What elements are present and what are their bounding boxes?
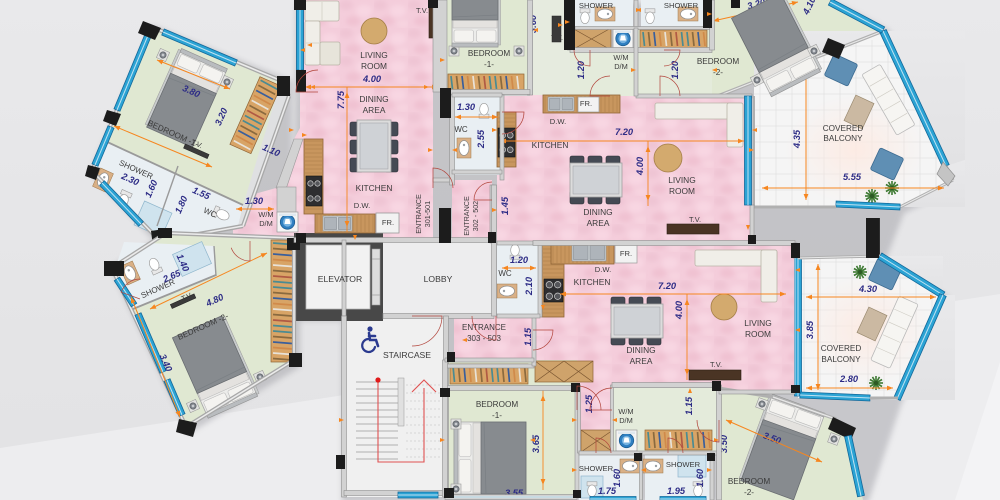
- svg-text:T.V.: T.V.: [416, 6, 428, 15]
- svg-text:1.95: 1.95: [667, 486, 686, 496]
- svg-text:FR.: FR.: [580, 99, 592, 108]
- svg-text:W/M: W/M: [258, 210, 273, 219]
- svg-text:4.30: 4.30: [858, 284, 878, 294]
- svg-text:-2-: -2-: [744, 488, 754, 497]
- svg-text:ENTRANCE: ENTRANCE: [462, 196, 471, 236]
- svg-text:D/M: D/M: [614, 62, 628, 71]
- svg-text:LIVING: LIVING: [744, 318, 771, 328]
- svg-text:4.00: 4.00: [362, 74, 382, 84]
- svg-text:4.00: 4.00: [674, 300, 684, 320]
- svg-text:COVERED: COVERED: [823, 124, 864, 133]
- svg-text:-1-: -1-: [492, 411, 502, 420]
- svg-text:BALCONY: BALCONY: [823, 134, 863, 143]
- svg-text:3.85: 3.85: [805, 320, 815, 339]
- svg-text:7.20: 7.20: [615, 127, 634, 137]
- svg-text:DINING: DINING: [626, 345, 655, 355]
- svg-text:SHOWER: SHOWER: [579, 1, 614, 10]
- svg-text:WC: WC: [498, 269, 512, 278]
- svg-text:KITCHEN: KITCHEN: [574, 277, 611, 287]
- svg-text:7.75: 7.75: [336, 90, 346, 109]
- svg-text:4.35: 4.35: [792, 129, 802, 149]
- svg-text:DINING: DINING: [359, 94, 388, 104]
- svg-text:SHOWER: SHOWER: [579, 464, 614, 473]
- svg-text:D.W.: D.W.: [550, 117, 566, 126]
- svg-text:1.60: 1.60: [695, 468, 705, 487]
- svg-text:BEDROOM: BEDROOM: [476, 400, 518, 409]
- svg-text:DINING: DINING: [583, 207, 612, 217]
- svg-text:4.00: 4.00: [635, 156, 645, 176]
- svg-text:2.80: 2.80: [839, 374, 859, 384]
- svg-text:ROOM: ROOM: [745, 329, 771, 339]
- svg-text:W/M: W/M: [613, 53, 628, 62]
- svg-text:301-501: 301-501: [423, 201, 432, 227]
- svg-text:2.10: 2.10: [524, 276, 534, 296]
- svg-text:3.65: 3.65: [531, 434, 541, 453]
- svg-text:W/M: W/M: [618, 407, 633, 416]
- svg-text:LIVING: LIVING: [668, 175, 695, 185]
- svg-text:AREA: AREA: [587, 218, 610, 228]
- svg-text:1.15: 1.15: [684, 396, 694, 415]
- svg-text:T.V.: T.V.: [710, 360, 722, 369]
- svg-text:ELEVATOR: ELEVATOR: [318, 274, 362, 284]
- svg-text:STAIRCASE: STAIRCASE: [383, 350, 431, 360]
- svg-text:1.60: 1.60: [612, 468, 622, 487]
- svg-text:FR.: FR.: [620, 249, 632, 258]
- svg-text:SHOWER: SHOWER: [664, 1, 699, 10]
- svg-text:1.20: 1.20: [510, 255, 529, 265]
- svg-text:2.55: 2.55: [476, 129, 486, 149]
- svg-text:FR.: FR.: [382, 218, 394, 227]
- svg-text:BEDROOM: BEDROOM: [468, 49, 510, 58]
- svg-text:LIVING: LIVING: [360, 50, 387, 60]
- svg-text:LOBBY: LOBBY: [424, 274, 453, 284]
- svg-text:D/M: D/M: [619, 416, 633, 425]
- svg-text:BEDROOM: BEDROOM: [728, 477, 770, 486]
- svg-text:BALCONY: BALCONY: [821, 355, 861, 364]
- svg-text:ROOM: ROOM: [361, 61, 387, 71]
- svg-text:1.15: 1.15: [523, 327, 533, 346]
- svg-text:ENTRANCE: ENTRANCE: [414, 194, 423, 234]
- svg-text:D.W.: D.W.: [595, 265, 611, 274]
- svg-text:1.20: 1.20: [670, 60, 680, 79]
- svg-text:D.W.: D.W.: [354, 201, 370, 210]
- svg-text:COVERED: COVERED: [821, 344, 862, 353]
- svg-text:AREA: AREA: [363, 105, 386, 115]
- svg-text:ROOM: ROOM: [669, 186, 695, 196]
- svg-text:ENTRANCE: ENTRANCE: [462, 323, 506, 332]
- svg-text:T.V.: T.V.: [689, 215, 701, 224]
- svg-text:7.20: 7.20: [658, 281, 677, 291]
- svg-text:1.45: 1.45: [500, 196, 510, 215]
- svg-text:1.30: 1.30: [245, 196, 264, 206]
- svg-text:1.30: 1.30: [457, 102, 476, 112]
- svg-text:KITCHEN: KITCHEN: [356, 183, 393, 193]
- svg-text:SHOWER: SHOWER: [666, 460, 701, 469]
- svg-text:5.55: 5.55: [843, 172, 862, 182]
- svg-text:WC: WC: [454, 125, 468, 134]
- svg-text:BEDROOM: BEDROOM: [697, 57, 739, 66]
- svg-text:D/M: D/M: [259, 219, 273, 228]
- svg-text:302 - 502: 302 - 502: [471, 201, 480, 231]
- svg-text:-1-: -1-: [484, 60, 494, 69]
- svg-text:T.V.: T.V.: [551, 33, 563, 42]
- svg-text:AREA: AREA: [630, 356, 653, 366]
